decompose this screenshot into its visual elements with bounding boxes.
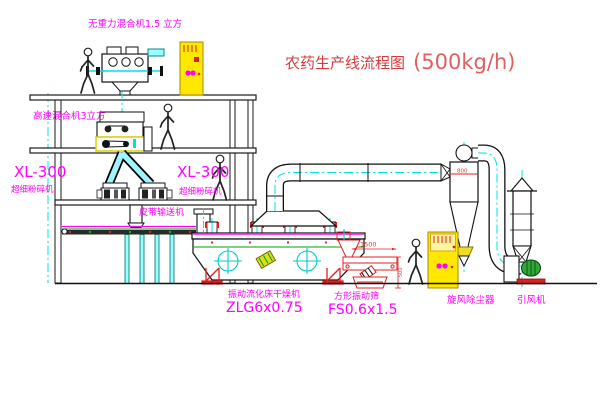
label-dryer-model: ZLG6x0.75 [226, 300, 303, 316]
label-belt-conveyor: 皮带输送机 [139, 206, 184, 218]
label-fan: 引风机 [517, 294, 546, 306]
pulverizer-center-unit [139, 183, 172, 200]
pulverizer-left-unit [97, 183, 129, 200]
label-high-speed-mixer: 高速混合机3立方 [33, 110, 106, 122]
title-capacity: (500kg/h) [413, 50, 515, 74]
mixer-outlet-pipe [148, 49, 164, 56]
exhaust-duct [251, 163, 450, 226]
gravity-free-mixer [86, 47, 164, 95]
control-cabinet-right [428, 232, 458, 288]
label-dryer-name: 振动流化床干燥机 [228, 288, 300, 300]
title-text: 农药生产线流程图 [285, 54, 405, 72]
label-pulverizer-center-name: 超细粉碎机 [179, 186, 222, 197]
label-screen-name: 方形振动筛 [334, 290, 379, 302]
control-cabinet-top [180, 42, 203, 95]
label-gravity-free-mixer: 无重力混合机1.5 立方 [88, 18, 182, 30]
diagram-title: 农药生产线流程图 (500kg/h) [285, 50, 515, 74]
person-figure-4 [409, 239, 423, 284]
y-splitter-chute [109, 153, 151, 184]
label-pulverizer-left-model: XL-300 [14, 163, 66, 181]
belt-conveyor [62, 227, 196, 284]
screen-length-dim: 1500 [360, 241, 377, 249]
person-figure-2 [161, 104, 175, 149]
label-cyclone: 旋风除尘器 [447, 294, 495, 306]
label-screen-model: FS0.6x1.5 [328, 302, 398, 318]
label-pulverizer-center-model: XL-300 [177, 163, 229, 181]
diagram-canvas: 800 1500 [0, 0, 600, 403]
label-pulverizer-left-name: 超细粉碎机 [11, 184, 54, 195]
screen-height-dim: 500 [398, 267, 404, 277]
cad-flow-diagram: 800 1500 [0, 0, 600, 403]
fluid-bed-dryer [192, 218, 365, 284]
cyclone-dim-label: 800 [457, 169, 468, 175]
